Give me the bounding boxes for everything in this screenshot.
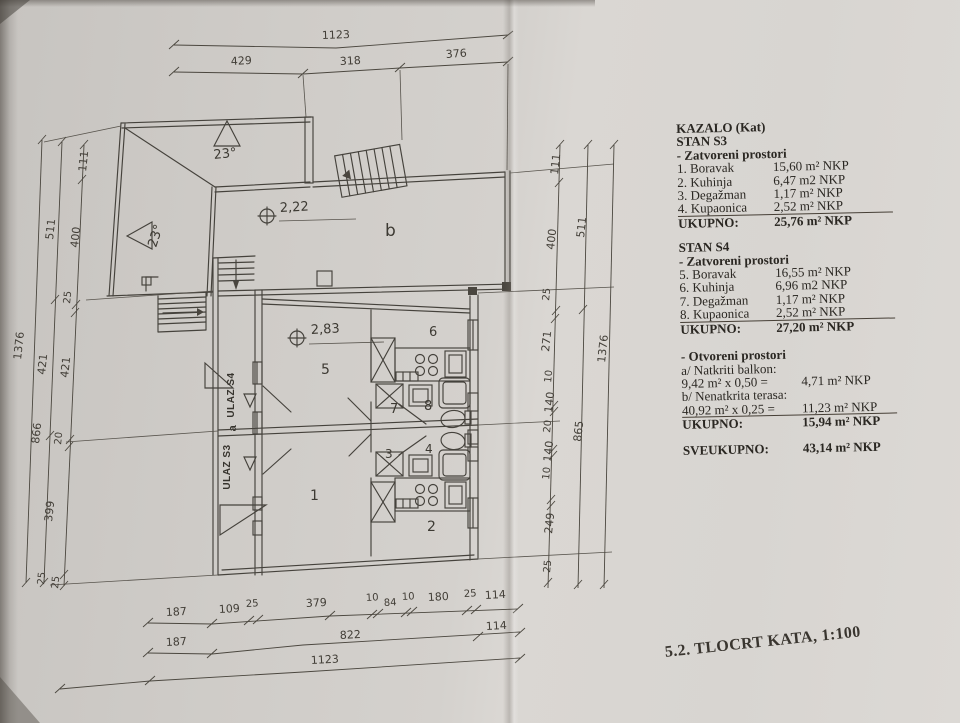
terrace-stairs [335, 144, 407, 197]
dim-l-25b: 25 [36, 571, 48, 585]
dim-l-400: 400 [68, 226, 83, 248]
fixtures-s4 [371, 338, 471, 429]
dim-b1-25: 25 [246, 598, 259, 610]
dim-b1-114: 114 [484, 588, 506, 602]
dim-r-140a: 140 [542, 391, 557, 413]
dim-l-421a: 421 [35, 353, 50, 375]
fixtures-s3 [348, 398, 471, 522]
dim-b1-379: 379 [305, 596, 327, 610]
dim-top-318: 318 [339, 54, 361, 68]
room-5-label: 5 [321, 362, 330, 378]
room-4-label: 4 [425, 442, 433, 456]
dim-b1-10b: 10 [402, 591, 415, 603]
left-stair [142, 277, 206, 332]
dim-l-20: 20 [53, 431, 65, 445]
dim-l-421b: 421 [58, 356, 73, 378]
legend-panel: KAZALO (Kat) STAN S3 - Zatvoreni prostor… [676, 116, 960, 457]
dim-l-866: 866 [29, 422, 44, 444]
dim-r-1376: 1376 [595, 334, 611, 363]
dim-r-25: 25 [541, 287, 553, 301]
room-7-label: 7 [390, 402, 398, 417]
ulaz-s3-label: ULAZ S3 [222, 444, 233, 489]
slope-label-left: 23° [146, 223, 167, 250]
dim-r-400: 400 [544, 228, 559, 250]
dim-b1-187: 187 [165, 605, 187, 619]
dim-r-111: 111 [548, 153, 563, 175]
dim-r-25b: 25 [542, 559, 554, 573]
dim-b2-187: 187 [165, 635, 187, 649]
dim-r-10b: 10 [541, 466, 553, 480]
dim-b1-10a: 10 [366, 592, 379, 604]
wall-pillar [468, 287, 477, 295]
terrace-label: b [385, 221, 396, 241]
dim-b1-180: 180 [427, 590, 449, 604]
svg-text:2,22: 2,22 [279, 199, 309, 215]
dim-b1-109: 109 [218, 602, 240, 616]
dim-l-1376: 1376 [11, 331, 27, 360]
height-marker-room: 2,83 [288, 321, 384, 347]
ulaz-s4-label: ULAZ S4 [226, 372, 237, 417]
terrace-corner-pillar [502, 282, 511, 291]
room-8-label: 8 [424, 399, 432, 414]
apartment-walls [218, 295, 478, 575]
room-1-label: 1 [310, 488, 319, 504]
room-2-label: 2 [427, 519, 436, 535]
room-6-label: 6 [429, 325, 437, 340]
dim-r-511: 511 [574, 216, 589, 238]
svg-text:2,83: 2,83 [310, 321, 340, 337]
dim-b1-25b: 25 [464, 588, 477, 600]
dim-r-865: 865 [571, 420, 586, 442]
room-3-label: 3 [385, 447, 393, 461]
dim-lines-bottom [55, 604, 525, 693]
dim-r-140b: 140 [541, 440, 556, 462]
dim-top-total: 1123 [322, 28, 350, 42]
dim-l-25a: 25 [62, 290, 74, 304]
dim-b1-84: 84 [384, 597, 397, 609]
corridor-a-label: a [227, 424, 239, 431]
dim-l-25c: 25 [50, 575, 62, 589]
dim-b3-1123: 1123 [310, 653, 339, 667]
slope-label-top: 23° [213, 146, 237, 163]
dim-l-111: 111 [76, 150, 91, 172]
height-marker-terrace: 2,22 [258, 199, 356, 225]
dim-r-271: 271 [539, 330, 554, 352]
dim-l-399: 399 [42, 500, 57, 522]
dim-r-249: 249 [542, 512, 557, 534]
dim-r-10a: 10 [543, 369, 555, 383]
scanned-floor-plan-page: 23° 23° b 2,22 [0, 0, 960, 723]
dim-r-20: 20 [542, 419, 554, 433]
dim-b2-822: 822 [339, 628, 361, 642]
dim-l-511: 511 [43, 218, 58, 240]
dim-top-376: 376 [445, 47, 467, 61]
dim-top-429: 429 [230, 54, 252, 68]
dim-b2-114: 114 [485, 619, 507, 633]
